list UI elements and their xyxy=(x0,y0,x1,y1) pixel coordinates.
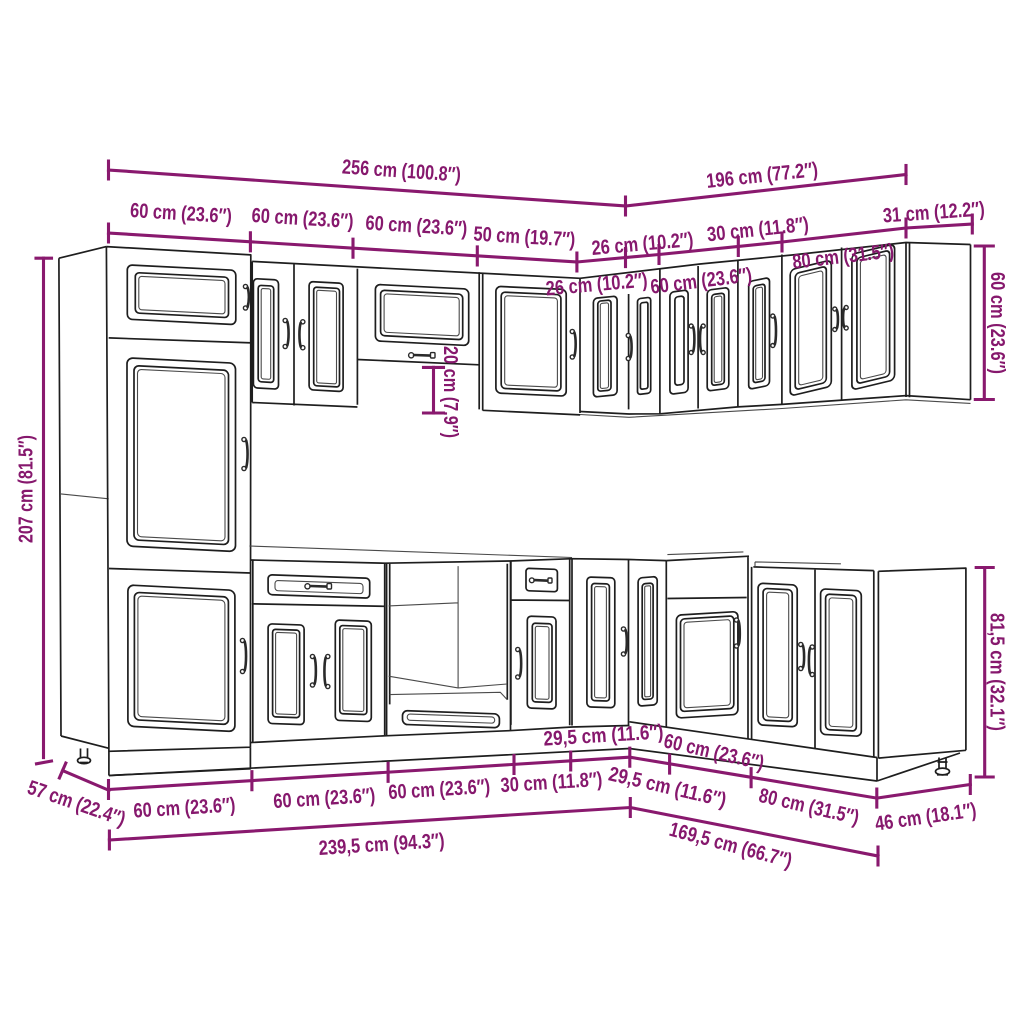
svg-text:81,5 cm (32.1″): 81,5 cm (32.1″) xyxy=(986,613,1009,731)
svg-text:20 cm (7.9″): 20 cm (7.9″) xyxy=(439,346,462,438)
svg-text:207 cm (81.5″): 207 cm (81.5″) xyxy=(15,435,38,543)
svg-text:60 cm (23.6″): 60 cm (23.6″) xyxy=(986,272,1009,374)
